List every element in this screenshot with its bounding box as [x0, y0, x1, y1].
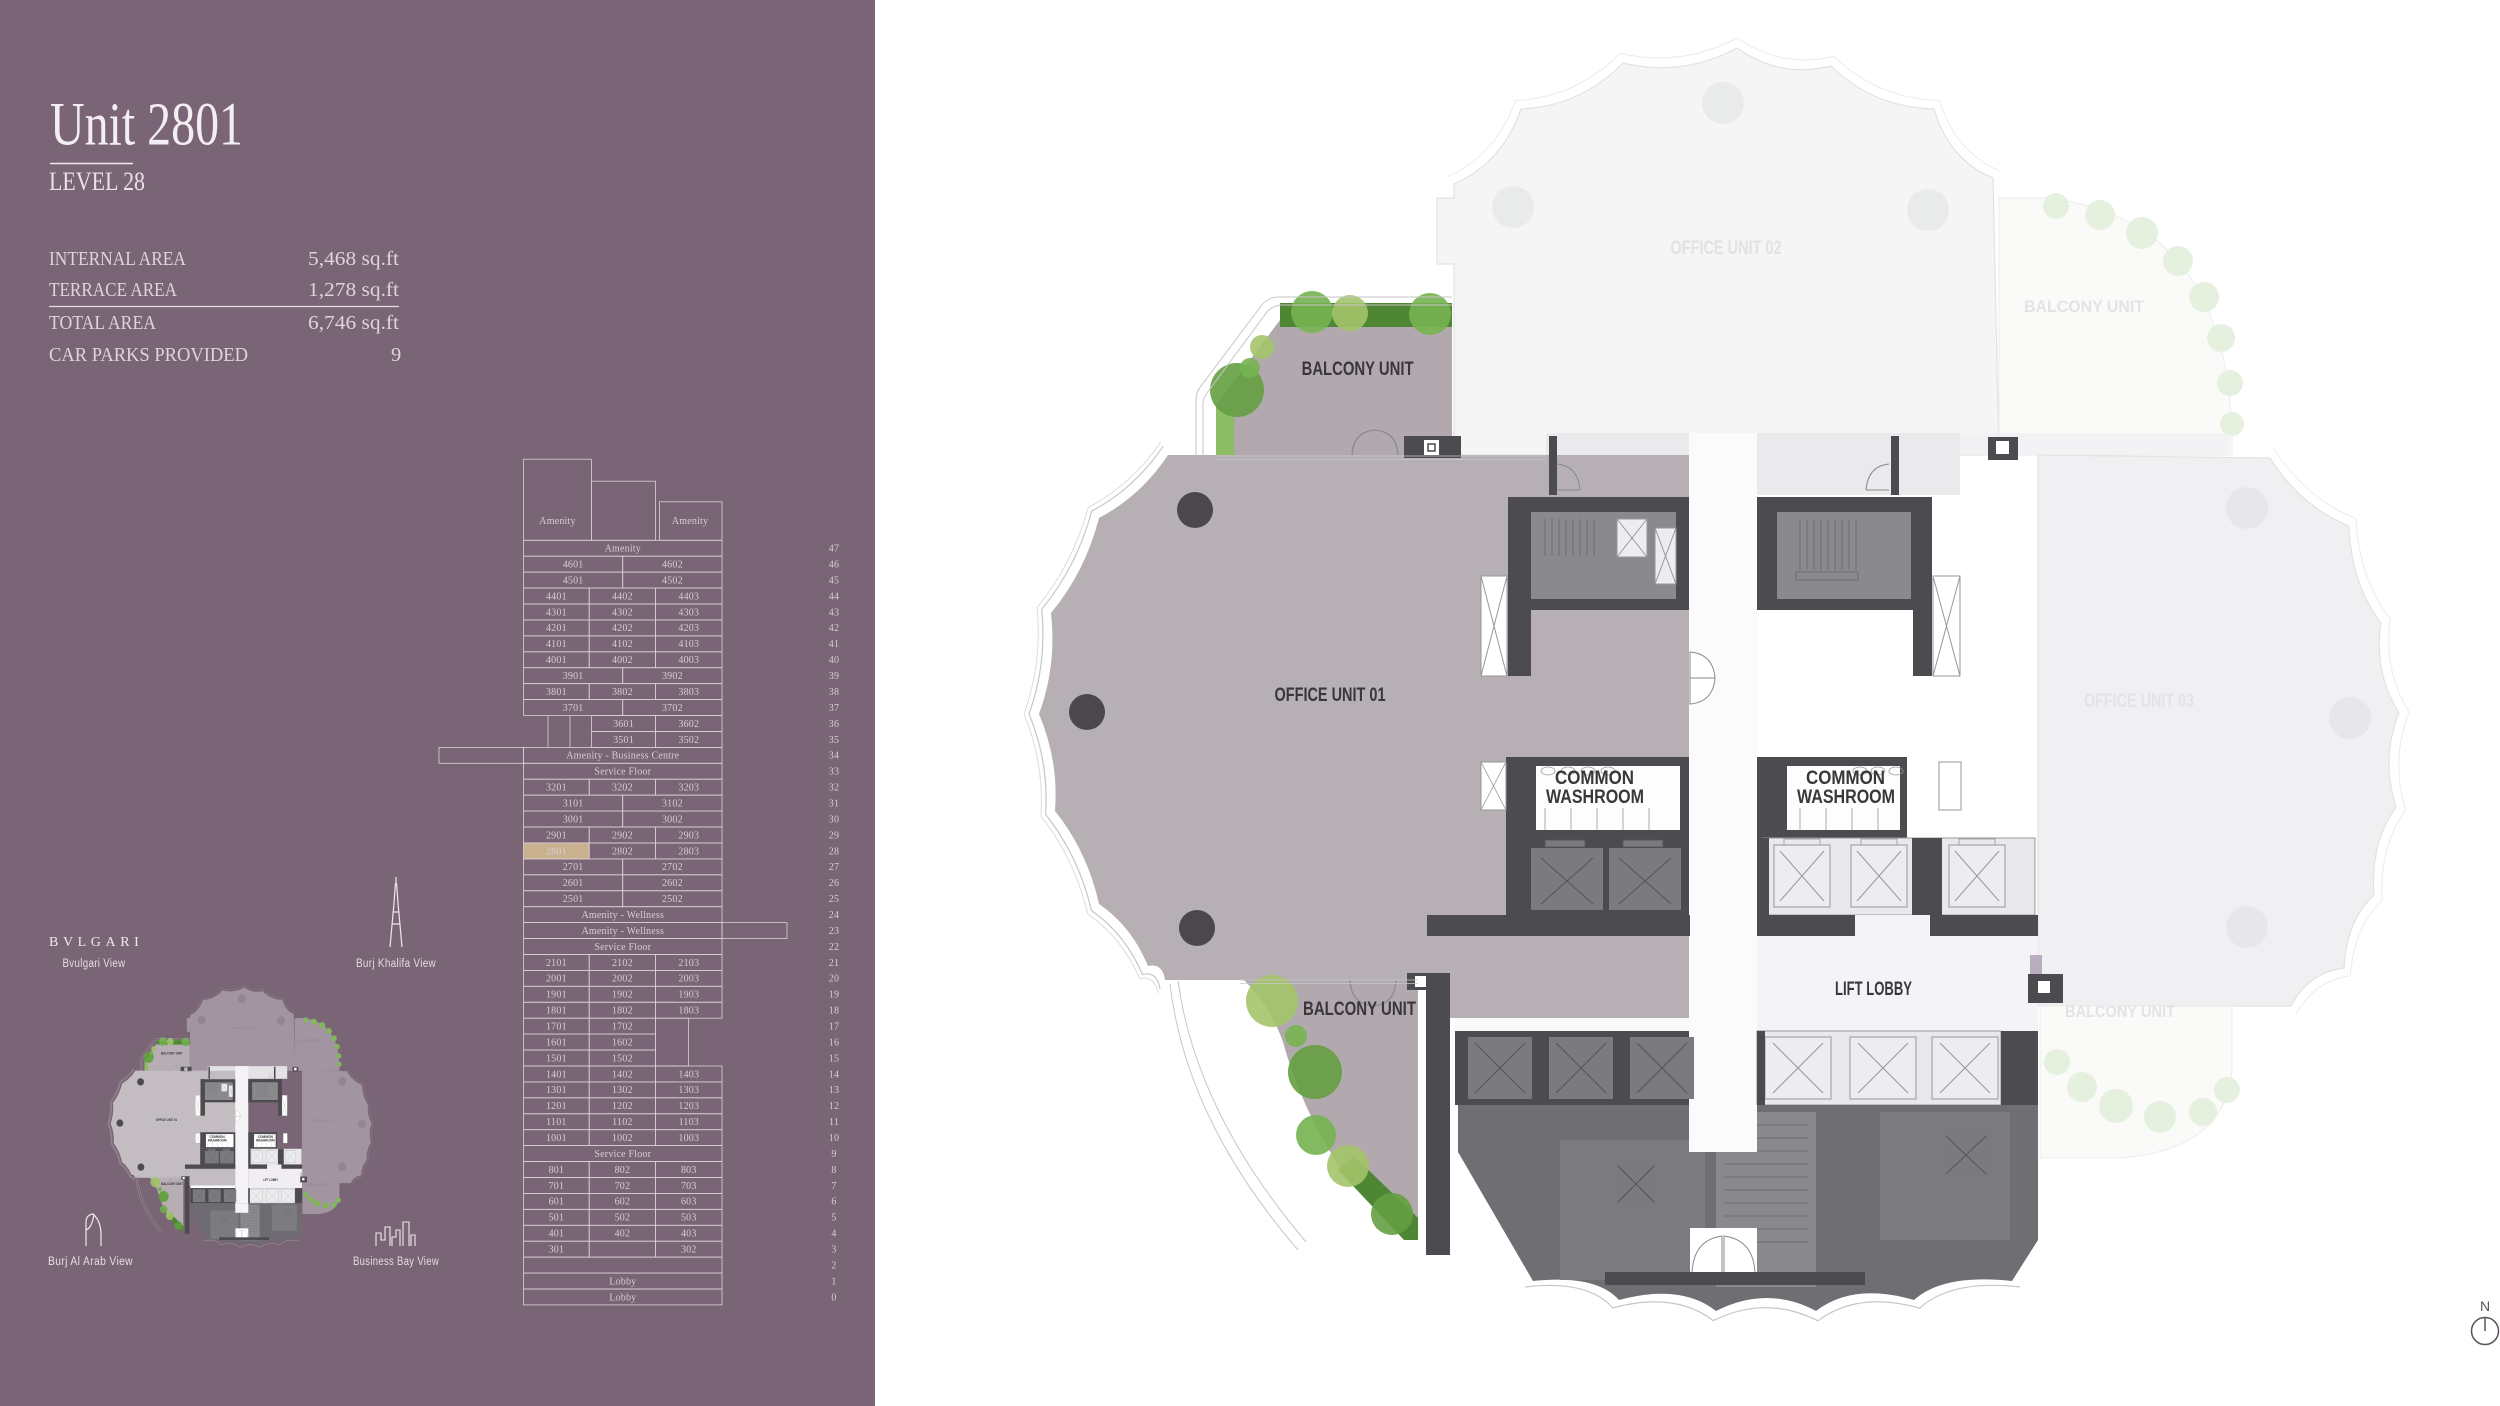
svg-text:1102: 1102 — [612, 1117, 632, 1128]
svg-text:Service Floor: Service Floor — [594, 767, 651, 778]
svg-text:39: 39 — [829, 671, 839, 682]
svg-text:2102: 2102 — [612, 958, 633, 969]
svg-text:3001: 3001 — [563, 814, 584, 825]
svg-text:17: 17 — [829, 1022, 839, 1033]
svg-text:18: 18 — [829, 1006, 839, 1017]
svg-text:37: 37 — [829, 703, 839, 714]
svg-text:503: 503 — [681, 1213, 697, 1224]
svg-text:4203: 4203 — [678, 623, 699, 634]
svg-text:801: 801 — [549, 1165, 565, 1176]
svg-text:4: 4 — [831, 1229, 836, 1240]
svg-text:Burj Khalifa View: Burj Khalifa View — [356, 958, 436, 970]
svg-text:5: 5 — [831, 1213, 836, 1224]
svg-text:21: 21 — [829, 958, 839, 969]
svg-text:2903: 2903 — [678, 830, 699, 841]
svg-text:803: 803 — [681, 1165, 697, 1176]
svg-text:Lobby: Lobby — [609, 1292, 636, 1303]
svg-text:40: 40 — [829, 655, 839, 666]
svg-text:1702: 1702 — [612, 1022, 633, 1033]
svg-text:2702: 2702 — [662, 862, 683, 873]
svg-text:1501: 1501 — [546, 1053, 567, 1064]
svg-text:41: 41 — [829, 639, 839, 650]
svg-text:2003: 2003 — [678, 974, 699, 985]
svg-text:33: 33 — [829, 767, 839, 778]
svg-text:2502: 2502 — [662, 894, 683, 905]
svg-text:2803: 2803 — [678, 846, 699, 857]
svg-text:3803: 3803 — [678, 687, 699, 698]
svg-text:501: 501 — [549, 1213, 565, 1224]
svg-text:9: 9 — [831, 1149, 836, 1160]
svg-text:1203: 1203 — [678, 1101, 699, 1112]
svg-text:3201: 3201 — [546, 783, 567, 794]
svg-text:403: 403 — [681, 1229, 697, 1240]
svg-text:38: 38 — [829, 687, 839, 698]
svg-text:2602: 2602 — [662, 878, 683, 889]
svg-text:1403: 1403 — [678, 1069, 699, 1080]
svg-text:N: N — [2480, 1298, 2490, 1314]
svg-text:1402: 1402 — [612, 1069, 633, 1080]
svg-text:4003: 4003 — [678, 655, 699, 666]
svg-text:Service Floor: Service Floor — [594, 942, 651, 953]
svg-text:3601: 3601 — [613, 719, 634, 730]
svg-text:4502: 4502 — [662, 576, 683, 587]
svg-text:32: 32 — [829, 783, 839, 794]
svg-text:9: 9 — [391, 344, 401, 366]
svg-text:43: 43 — [829, 607, 839, 618]
svg-text:30: 30 — [829, 814, 839, 825]
svg-text:3802: 3802 — [612, 687, 633, 698]
svg-text:Amenity - Wellness: Amenity - Wellness — [581, 910, 664, 921]
svg-text:1201: 1201 — [546, 1101, 567, 1112]
svg-text:4001: 4001 — [546, 655, 567, 666]
svg-text:703: 703 — [681, 1181, 697, 1192]
svg-text:LEVEL 28: LEVEL 28 — [49, 167, 145, 196]
svg-text:2802: 2802 — [612, 846, 633, 857]
svg-text:35: 35 — [829, 735, 839, 746]
svg-text:3501: 3501 — [613, 735, 634, 746]
svg-text:Amenity: Amenity — [539, 516, 575, 527]
svg-text:INTERNAL AREA: INTERNAL AREA — [49, 248, 186, 270]
svg-text:302: 302 — [681, 1245, 697, 1256]
svg-text:6,746 sq.ft: 6,746 sq.ft — [308, 312, 399, 334]
svg-text:4501: 4501 — [563, 576, 584, 587]
svg-text:29: 29 — [829, 830, 839, 841]
svg-text:3203: 3203 — [678, 783, 699, 794]
svg-text:2101: 2101 — [546, 958, 567, 969]
svg-text:34: 34 — [829, 751, 839, 762]
svg-text:3502: 3502 — [678, 735, 699, 746]
svg-text:16: 16 — [829, 1037, 839, 1048]
svg-text:15: 15 — [829, 1053, 839, 1064]
svg-text:3002: 3002 — [662, 814, 683, 825]
svg-text:45: 45 — [829, 576, 839, 587]
svg-text:4002: 4002 — [612, 655, 633, 666]
svg-text:26: 26 — [829, 878, 839, 889]
svg-text:3102: 3102 — [662, 799, 683, 810]
svg-text:TERRACE AREA: TERRACE AREA — [49, 279, 177, 301]
svg-text:2601: 2601 — [563, 878, 584, 889]
svg-text:4401: 4401 — [546, 591, 567, 602]
svg-text:1602: 1602 — [612, 1037, 633, 1048]
svg-text:BVLGARI: BVLGARI — [49, 935, 143, 950]
svg-text:3202: 3202 — [612, 783, 633, 794]
svg-text:Amenity - Business Centre: Amenity - Business Centre — [566, 751, 679, 762]
svg-text:4202: 4202 — [612, 623, 633, 634]
svg-text:2: 2 — [831, 1261, 836, 1272]
svg-text:2701: 2701 — [563, 862, 584, 873]
svg-text:Amenity: Amenity — [605, 544, 641, 555]
svg-text:4403: 4403 — [678, 591, 699, 602]
svg-text:TOTAL AREA: TOTAL AREA — [49, 312, 156, 334]
svg-text:46: 46 — [829, 560, 839, 571]
svg-text:CAR PARKS PROVIDED: CAR PARKS PROVIDED — [49, 344, 248, 366]
svg-text:401: 401 — [549, 1229, 565, 1240]
svg-text:10: 10 — [829, 1133, 839, 1144]
svg-text:Unit 2801: Unit 2801 — [50, 92, 243, 159]
svg-text:4302: 4302 — [612, 607, 633, 618]
svg-text:2801: 2801 — [546, 846, 567, 857]
svg-text:1002: 1002 — [612, 1133, 633, 1144]
svg-text:3602: 3602 — [678, 719, 699, 730]
svg-text:4601: 4601 — [563, 560, 584, 571]
svg-text:1301: 1301 — [546, 1085, 567, 1096]
svg-text:3801: 3801 — [546, 687, 567, 698]
svg-text:3702: 3702 — [662, 703, 683, 714]
svg-text:2901: 2901 — [546, 830, 567, 841]
svg-text:36: 36 — [829, 719, 839, 730]
svg-text:2501: 2501 — [563, 894, 584, 905]
svg-text:44: 44 — [829, 591, 839, 602]
svg-text:31: 31 — [829, 799, 839, 810]
svg-text:701: 701 — [549, 1181, 565, 1192]
svg-text:1401: 1401 — [546, 1069, 567, 1080]
svg-text:603: 603 — [681, 1197, 697, 1208]
svg-text:1801: 1801 — [546, 1006, 567, 1017]
svg-text:25: 25 — [829, 894, 839, 905]
svg-text:802: 802 — [615, 1165, 631, 1176]
svg-text:Business Bay View: Business Bay View — [353, 1256, 439, 1268]
svg-text:1202: 1202 — [612, 1101, 633, 1112]
svg-text:2902: 2902 — [612, 830, 633, 841]
svg-text:1901: 1901 — [546, 990, 567, 1001]
svg-text:1902: 1902 — [612, 990, 633, 1001]
svg-text:1502: 1502 — [612, 1053, 633, 1064]
svg-text:1,278 sq.ft: 1,278 sq.ft — [308, 279, 399, 301]
svg-text:Amenity: Amenity — [672, 516, 708, 527]
svg-text:1: 1 — [831, 1276, 836, 1287]
svg-text:47: 47 — [829, 544, 839, 555]
svg-text:5,468 sq.ft: 5,468 sq.ft — [308, 248, 399, 270]
svg-text:Service Floor: Service Floor — [594, 1149, 651, 1160]
svg-text:1802: 1802 — [612, 1006, 633, 1017]
svg-text:3901: 3901 — [563, 671, 584, 682]
svg-text:14: 14 — [829, 1069, 839, 1080]
svg-text:7: 7 — [831, 1181, 836, 1192]
svg-text:13: 13 — [829, 1085, 839, 1096]
svg-text:602: 602 — [615, 1197, 631, 1208]
svg-text:4103: 4103 — [678, 639, 699, 650]
svg-text:601: 601 — [549, 1197, 565, 1208]
svg-text:8: 8 — [831, 1165, 836, 1176]
svg-text:4201: 4201 — [546, 623, 567, 634]
svg-text:11: 11 — [829, 1117, 839, 1128]
svg-text:24: 24 — [829, 910, 839, 921]
svg-text:4402: 4402 — [612, 591, 633, 602]
svg-text:1103: 1103 — [679, 1117, 699, 1128]
svg-text:402: 402 — [615, 1229, 631, 1240]
svg-text:1101: 1101 — [546, 1117, 566, 1128]
svg-text:2103: 2103 — [678, 958, 699, 969]
svg-text:702: 702 — [615, 1181, 631, 1192]
svg-text:3902: 3902 — [662, 671, 683, 682]
svg-text:3: 3 — [831, 1245, 836, 1256]
svg-text:1303: 1303 — [678, 1085, 699, 1096]
svg-text:1302: 1302 — [612, 1085, 633, 1096]
svg-text:1701: 1701 — [546, 1022, 567, 1033]
svg-text:1803: 1803 — [678, 1006, 699, 1017]
svg-text:0: 0 — [831, 1292, 836, 1303]
svg-text:42: 42 — [829, 623, 839, 634]
svg-text:4101: 4101 — [546, 639, 567, 650]
svg-text:23: 23 — [829, 926, 839, 937]
svg-text:4301: 4301 — [546, 607, 567, 618]
svg-text:12: 12 — [829, 1101, 839, 1112]
svg-text:Burj Al Arab View: Burj Al Arab View — [48, 1256, 133, 1268]
svg-text:2001: 2001 — [546, 974, 567, 985]
svg-text:2002: 2002 — [612, 974, 633, 985]
svg-text:4602: 4602 — [662, 560, 683, 571]
svg-text:22: 22 — [829, 942, 839, 953]
svg-text:4102: 4102 — [612, 639, 633, 650]
svg-text:1003: 1003 — [678, 1133, 699, 1144]
svg-text:1001: 1001 — [546, 1133, 567, 1144]
svg-text:27: 27 — [829, 862, 839, 873]
svg-text:502: 502 — [615, 1213, 631, 1224]
svg-text:6: 6 — [831, 1197, 836, 1208]
svg-text:301: 301 — [549, 1245, 565, 1256]
svg-text:19: 19 — [829, 990, 839, 1001]
svg-text:20: 20 — [829, 974, 839, 985]
svg-text:28: 28 — [829, 846, 839, 857]
svg-text:1903: 1903 — [678, 990, 699, 1001]
svg-text:3701: 3701 — [563, 703, 584, 714]
svg-text:4303: 4303 — [678, 607, 699, 618]
svg-text:3101: 3101 — [563, 799, 584, 810]
svg-text:Lobby: Lobby — [609, 1276, 636, 1287]
svg-text:Bvulgari View: Bvulgari View — [63, 958, 126, 970]
svg-text:1601: 1601 — [546, 1037, 567, 1048]
svg-text:Amenity - Wellness: Amenity - Wellness — [581, 926, 664, 937]
